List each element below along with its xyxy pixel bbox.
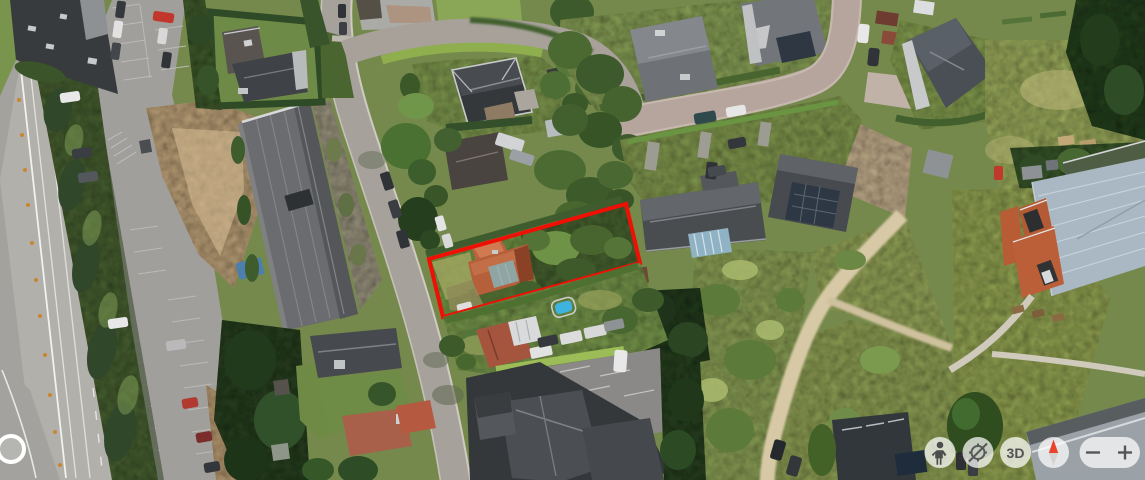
svg-text:3D: 3D — [1007, 445, 1025, 461]
